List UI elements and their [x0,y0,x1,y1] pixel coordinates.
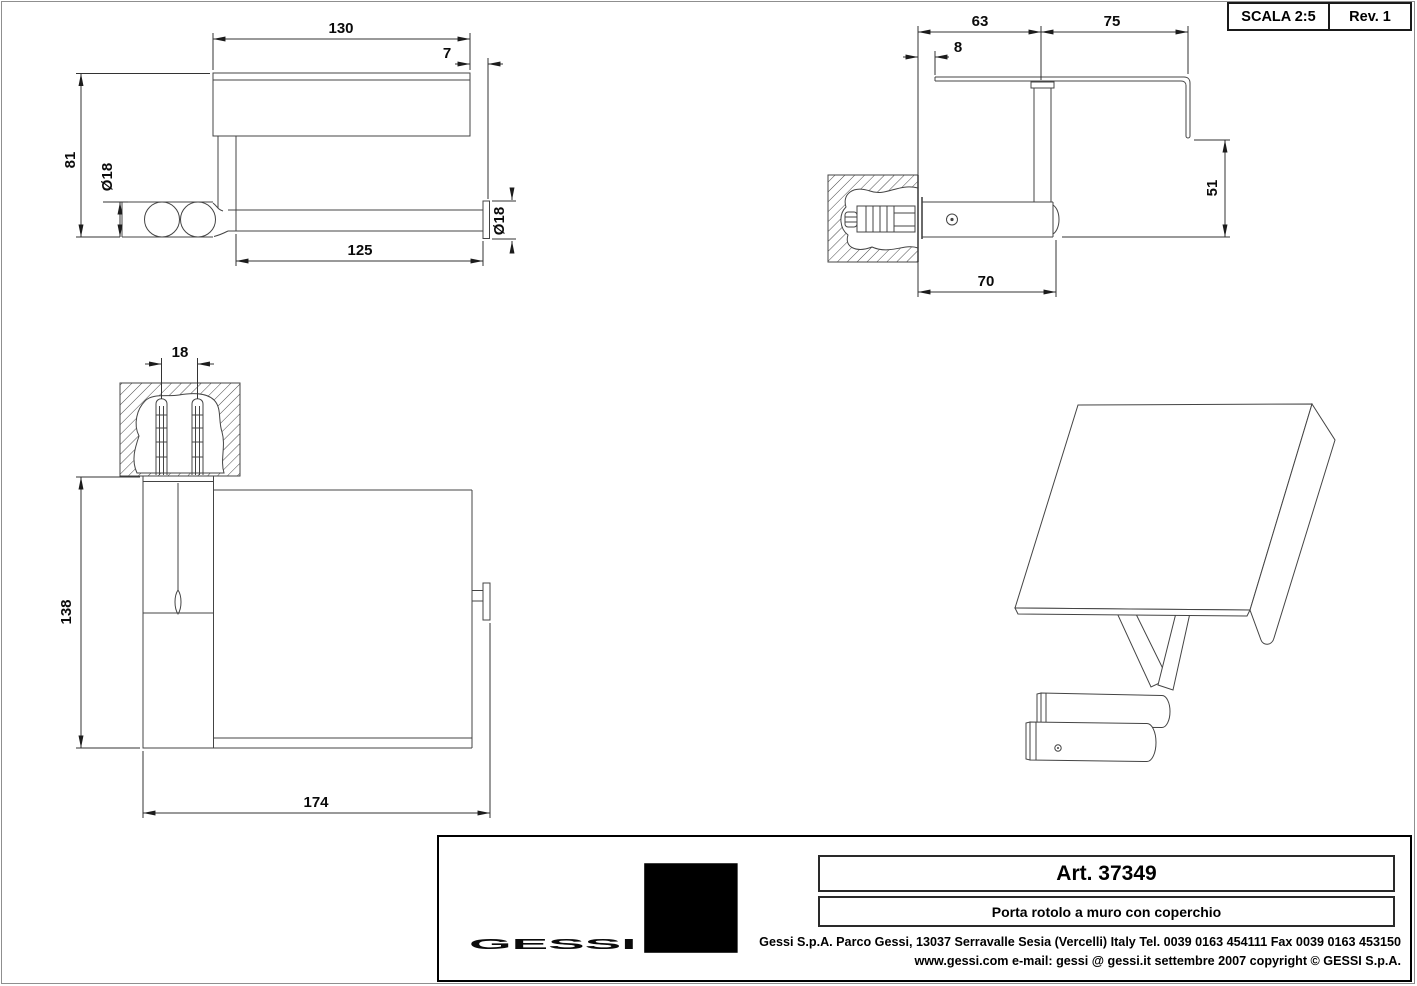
plan-view-geometry [120,383,490,748]
dim-section-arm-length: 70 [978,273,995,290]
description-box: Porta rotolo a muro con coperchio [818,896,1395,927]
gessi-logo-text: GESSI [469,937,636,953]
dim-section-lip-drop: 51 [1204,180,1221,197]
company-info: Gessi S.p.A. Parco Gessi, 13037 Serraval… [729,933,1401,971]
dim-front-height: 81 [62,152,79,169]
front-view: 130 7 81 Ø18 125 Ø18 [62,20,516,266]
front-view-geometry [122,73,490,239]
revision-label: Rev. 1 [1330,4,1410,29]
article-number: Art. 37349 [1056,862,1156,886]
dim-front-roller-length: 125 [347,242,372,259]
dim-front-cover-width: 130 [328,20,353,37]
section-view-geometry [828,77,1190,262]
company-contact: www.gessi.com e-mail: gessi @ gessi.it s… [729,952,1401,971]
section-view: 63 75 8 51 70 [828,13,1230,297]
isometric-view [1015,404,1335,762]
dim-plan-depth: 138 [58,599,75,624]
gessi-logo-square [644,863,737,953]
scale-revision-box: SCALA 2:5 Rev. 1 [1227,2,1412,31]
dim-front-end-cap-diameter: Ø18 [491,207,508,235]
article-number-box: Art. 37349 [818,855,1395,892]
dim-section-cover-front: 75 [1104,13,1121,30]
dim-plan-anchor-spacing: 18 [172,344,189,361]
company-address: Gessi S.p.A. Parco Gessi, 13037 Serraval… [729,933,1401,952]
gessi-logo: GESSI [469,861,761,956]
plan-view: 18 138 174 [58,344,490,818]
dim-section-wall-gap: 8 [954,39,962,56]
dim-plan-overall-width: 174 [303,794,329,811]
dim-section-cover-back: 63 [972,13,989,30]
title-block: GESSI Art. 37349 Porta rotolo a muro con… [437,835,1412,982]
dim-front-roller-diameter: Ø18 [99,163,116,191]
product-description: Porta rotolo a muro con coperchio [992,904,1221,920]
dim-front-lip-offset: 7 [443,45,451,62]
drawing-sheet: 130 7 81 Ø18 125 Ø18 [0,0,1417,986]
scale-label: SCALA 2:5 [1229,4,1330,29]
section-view-dimensions [903,26,1230,297]
